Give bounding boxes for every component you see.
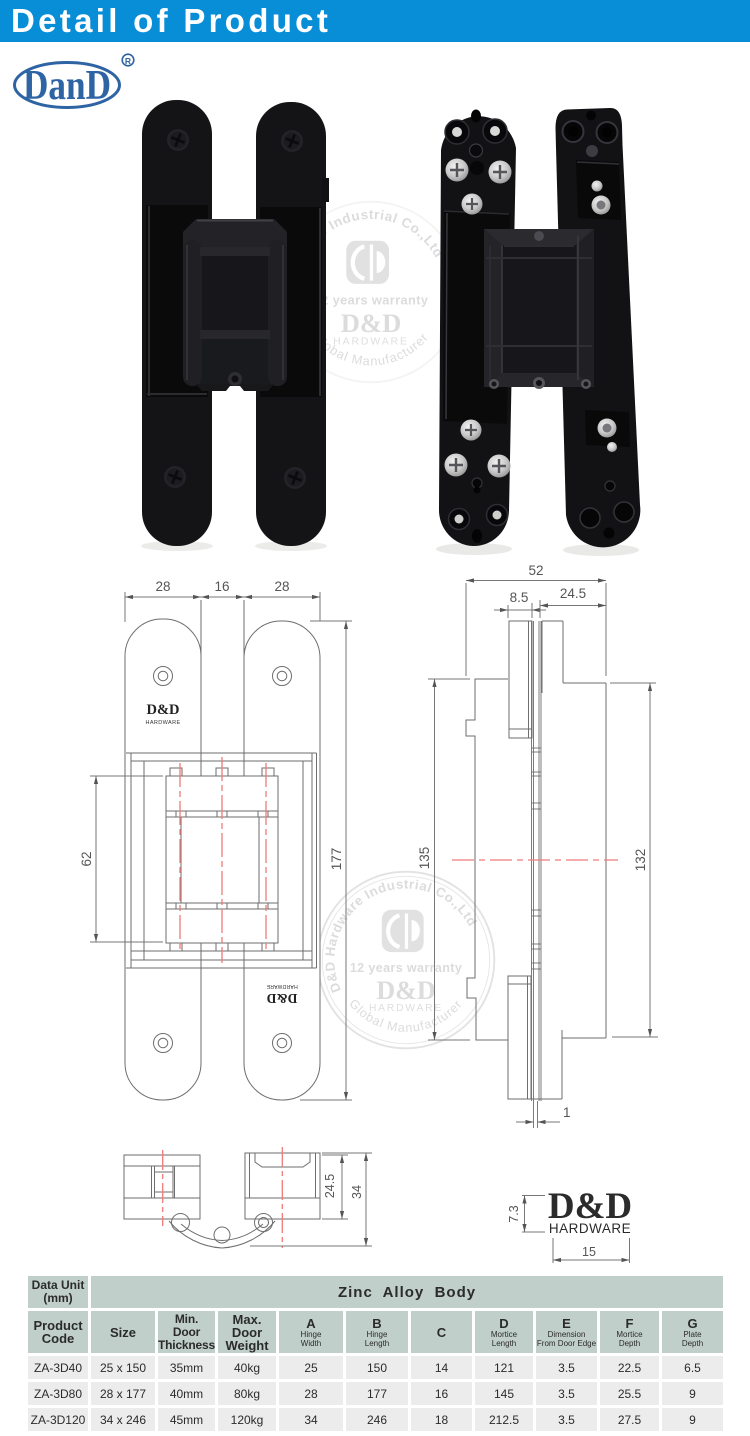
svg-text:DanD: DanD (23, 63, 111, 109)
svg-text:28: 28 (274, 579, 289, 594)
svg-text:16: 16 (214, 579, 229, 594)
svg-text:HARDWARE: HARDWARE (145, 720, 180, 726)
svg-text:7.3: 7.3 (507, 1205, 521, 1222)
svg-text:15: 15 (582, 1245, 596, 1259)
svg-text:D&D: D&D (146, 702, 179, 718)
svg-text:HARDWARE: HARDWARE (266, 983, 298, 989)
svg-text:24.5: 24.5 (560, 586, 586, 601)
svg-text:R: R (125, 56, 131, 66)
svg-text:28: 28 (155, 579, 170, 594)
svg-text:132: 132 (633, 849, 648, 872)
svg-text:34: 34 (350, 1185, 364, 1199)
svg-text:24.5: 24.5 (323, 1174, 337, 1198)
svg-text:62: 62 (79, 851, 94, 866)
svg-text:1: 1 (563, 1105, 571, 1120)
svg-text:8.5: 8.5 (510, 590, 529, 605)
svg-text:52: 52 (528, 563, 543, 578)
svg-text:D&D: D&D (266, 991, 297, 1006)
svg-text:177: 177 (329, 848, 344, 871)
svg-text:135: 135 (417, 847, 432, 870)
svg-text:HARDWARE: HARDWARE (549, 1221, 631, 1236)
